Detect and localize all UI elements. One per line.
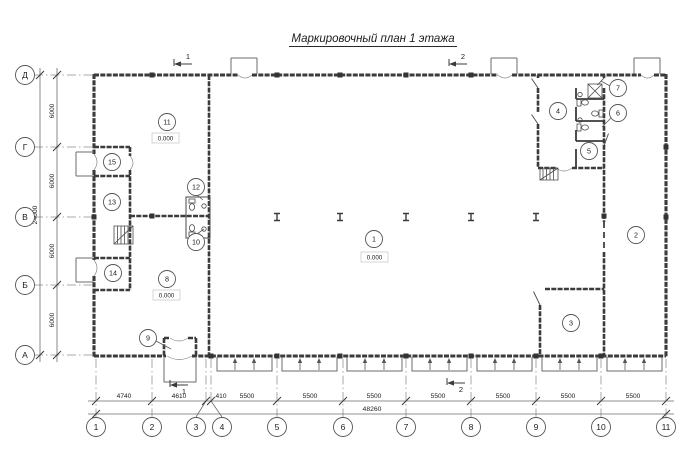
dim-total-48260: 48260: [363, 406, 382, 413]
axis-col-3: 3: [194, 422, 199, 432]
axis-col-10: 10: [596, 422, 606, 432]
axis-col-4: 4: [220, 422, 225, 432]
porches-and-vestibules: [76, 58, 660, 382]
stairs-icon: [114, 168, 558, 244]
room-number-14: 14: [109, 269, 117, 278]
axis-row-a: А: [22, 350, 28, 360]
sink-icon: [578, 92, 582, 122]
room-number-7: 7: [616, 84, 620, 93]
dim-5500-3: 5500: [367, 393, 382, 400]
dim-5500-4: 5500: [431, 393, 446, 400]
floor-plan-drawing: Маркировочный план 1 этажа: [0, 0, 700, 474]
room-number-4: 4: [556, 107, 560, 116]
elevation-room-8: 0.000: [159, 293, 175, 300]
dim-6000-4: 6000: [49, 312, 56, 327]
room-number-5: 5: [587, 147, 591, 156]
room-number-1: 1: [372, 235, 376, 244]
room-number-11: 11: [163, 118, 170, 127]
room-leader-lines: [156, 81, 611, 349]
room-number-10: 10: [192, 238, 200, 247]
dim-5500-1: 5500: [240, 393, 255, 400]
section-label: 1: [186, 52, 190, 61]
elevation-room-11: 0.000: [158, 136, 174, 143]
axis-row-b: Б: [22, 280, 28, 290]
section-mark-1-top: 1: [174, 52, 192, 67]
room-number-15: 15: [108, 158, 116, 167]
room-number-9: 9: [146, 334, 150, 343]
axis-col-9: 9: [534, 422, 539, 432]
dim-6000-1: 6000: [49, 103, 56, 118]
axis-row-g: Г: [23, 142, 28, 152]
axis-col-6: 6: [341, 422, 346, 432]
wc-block-fixtures: [577, 84, 603, 131]
room-number-8: 8: [165, 275, 169, 284]
sanitary-unit: [186, 197, 210, 238]
axis-col-7: 7: [404, 422, 409, 432]
axis-col-11: 11: [662, 422, 671, 432]
axis-col-5: 5: [275, 422, 280, 432]
dim-5500-7: 5500: [626, 393, 641, 400]
dim-6000-3: 6000: [49, 243, 56, 258]
loading-docks: [217, 357, 662, 371]
room-number-2: 2: [634, 231, 638, 240]
room-number-12: 12: [192, 183, 200, 192]
sink-icon: [202, 204, 206, 231]
elevation-room-1: 0.000: [367, 255, 383, 262]
axis-col-1: 1: [94, 422, 99, 432]
axis-col-8: 8: [469, 422, 474, 432]
axis-row-v: В: [22, 212, 28, 222]
section-label: 1: [182, 387, 186, 396]
room-bubbles: [104, 80, 645, 347]
free-standing-columns: [274, 214, 539, 221]
toilet-icon: [577, 99, 603, 131]
dim-5500-2: 5500: [303, 393, 318, 400]
dim-5500-6: 5500: [561, 393, 576, 400]
dim-4740: 4740: [117, 393, 132, 400]
exterior-walls: [94, 74, 666, 357]
axis-row-d: Д: [22, 70, 28, 80]
door-swings: [532, 78, 609, 305]
section-mark-2-bottom: 2: [447, 378, 465, 394]
room-number-13: 13: [108, 198, 116, 207]
section-mark-2-top: 2: [449, 52, 467, 67]
dim-410: 410: [215, 393, 226, 400]
room-number-6: 6: [616, 109, 620, 118]
room-number-3: 3: [569, 319, 573, 328]
section-label: 2: [459, 385, 463, 394]
plan-svg: 4740 4610 410 5500 5500 5500 5500 5500 5…: [0, 0, 700, 474]
dim-6000-2: 6000: [49, 173, 56, 188]
section-label: 2: [461, 52, 465, 61]
column-axis-bubbles: [87, 418, 676, 437]
dimension-ticks: [36, 71, 670, 418]
toilet-icon: [189, 199, 195, 236]
axis-col-2: 2: [150, 422, 155, 432]
dim-5500-5: 5500: [496, 393, 511, 400]
